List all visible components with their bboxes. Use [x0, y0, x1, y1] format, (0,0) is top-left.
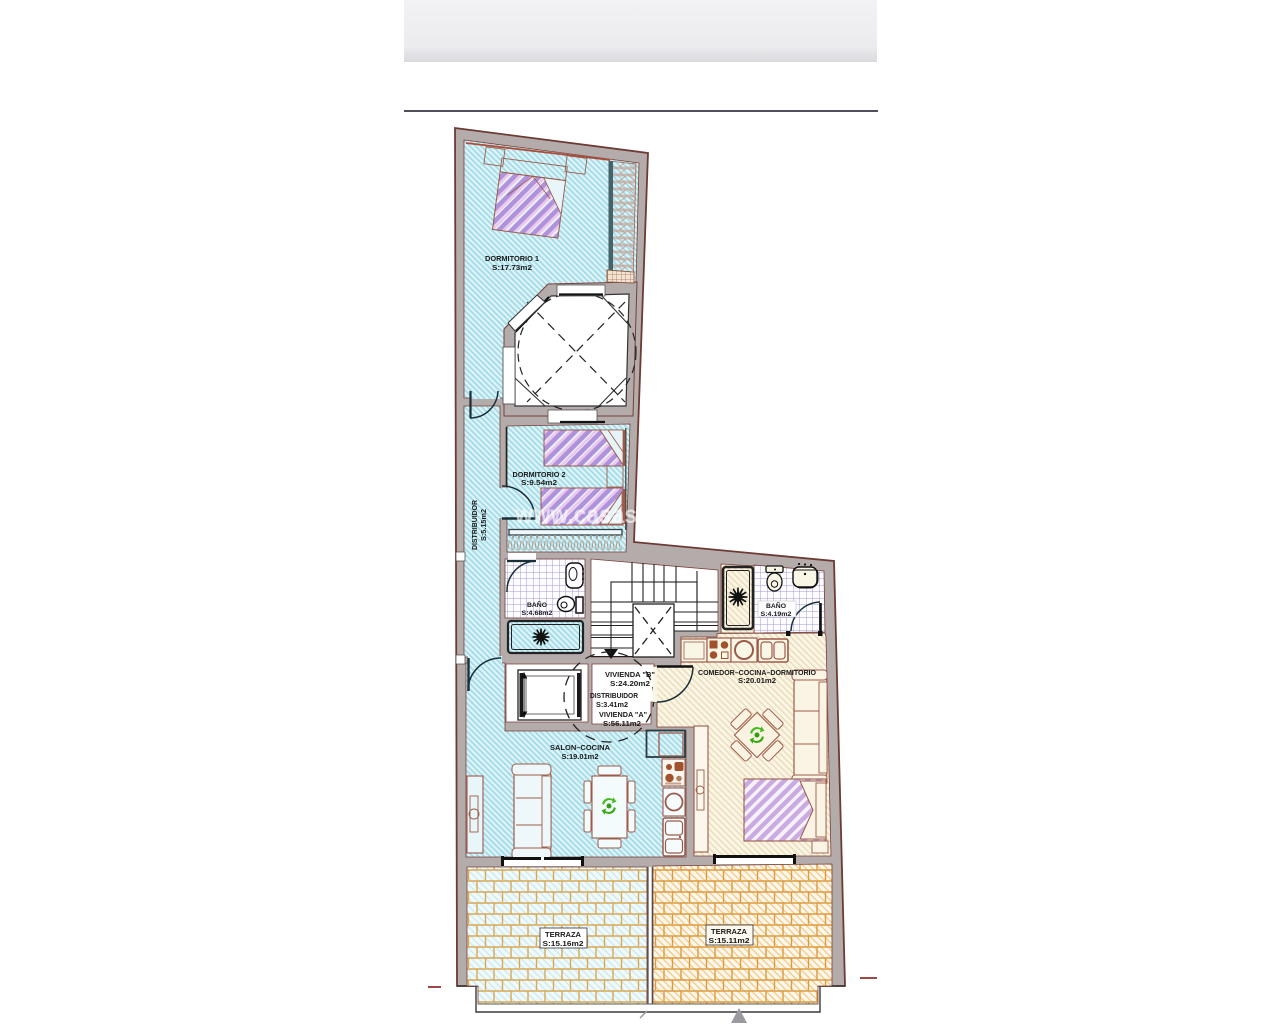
svg-text:DORMITORIO 2: DORMITORIO 2	[513, 471, 566, 479]
svg-text:BAÑO: BAÑO	[766, 601, 786, 610]
svg-text:S:20.01m2: S:20.01m2	[738, 677, 776, 685]
svg-text:S:4.68m2: S:4.68m2	[522, 610, 553, 617]
svg-text:COMEDOR–COCINA–DORMITORIO: COMEDOR–COCINA–DORMITORIO	[698, 669, 816, 677]
svg-text:DORMITORIO 1: DORMITORIO 1	[485, 255, 539, 263]
svg-text:TERRAZA: TERRAZA	[711, 928, 747, 936]
svg-text:BAÑO: BAÑO	[527, 600, 547, 609]
svg-text:VIVIENDA "A": VIVIENDA "A"	[599, 711, 647, 719]
svg-text:DISTRIBUIDOR: DISTRIBUIDOR	[590, 692, 638, 700]
svg-text:S:3.41m2: S:3.41m2	[596, 701, 628, 709]
svg-text:VIVIENDA "B": VIVIENDA "B"	[605, 671, 655, 679]
svg-text:S:15.11m2: S:15.11m2	[709, 937, 750, 945]
svg-text:S:4.19m2: S:4.19m2	[761, 611, 792, 618]
svg-text:S:5.15m2: S:5.15m2	[481, 509, 488, 541]
svg-text:S:15.16m2: S:15.16m2	[543, 940, 584, 948]
svg-text:S:56.11m2: S:56.11m2	[603, 720, 641, 728]
svg-text:S:24.20m2: S:24.20m2	[610, 680, 650, 688]
svg-text:DISTRIBUIDOR: DISTRIBUIDOR	[471, 500, 479, 550]
svg-text:SALON–COCINA: SALON–COCINA	[550, 744, 610, 752]
svg-text:S:19.01m2: S:19.01m2	[562, 753, 599, 761]
svg-text:S:9.54m2: S:9.54m2	[521, 479, 557, 487]
svg-text:www.casas: www.casas	[514, 501, 637, 529]
svg-text:S:17.73m2: S:17.73m2	[492, 264, 532, 272]
svg-text:TERRAZA: TERRAZA	[545, 931, 581, 939]
